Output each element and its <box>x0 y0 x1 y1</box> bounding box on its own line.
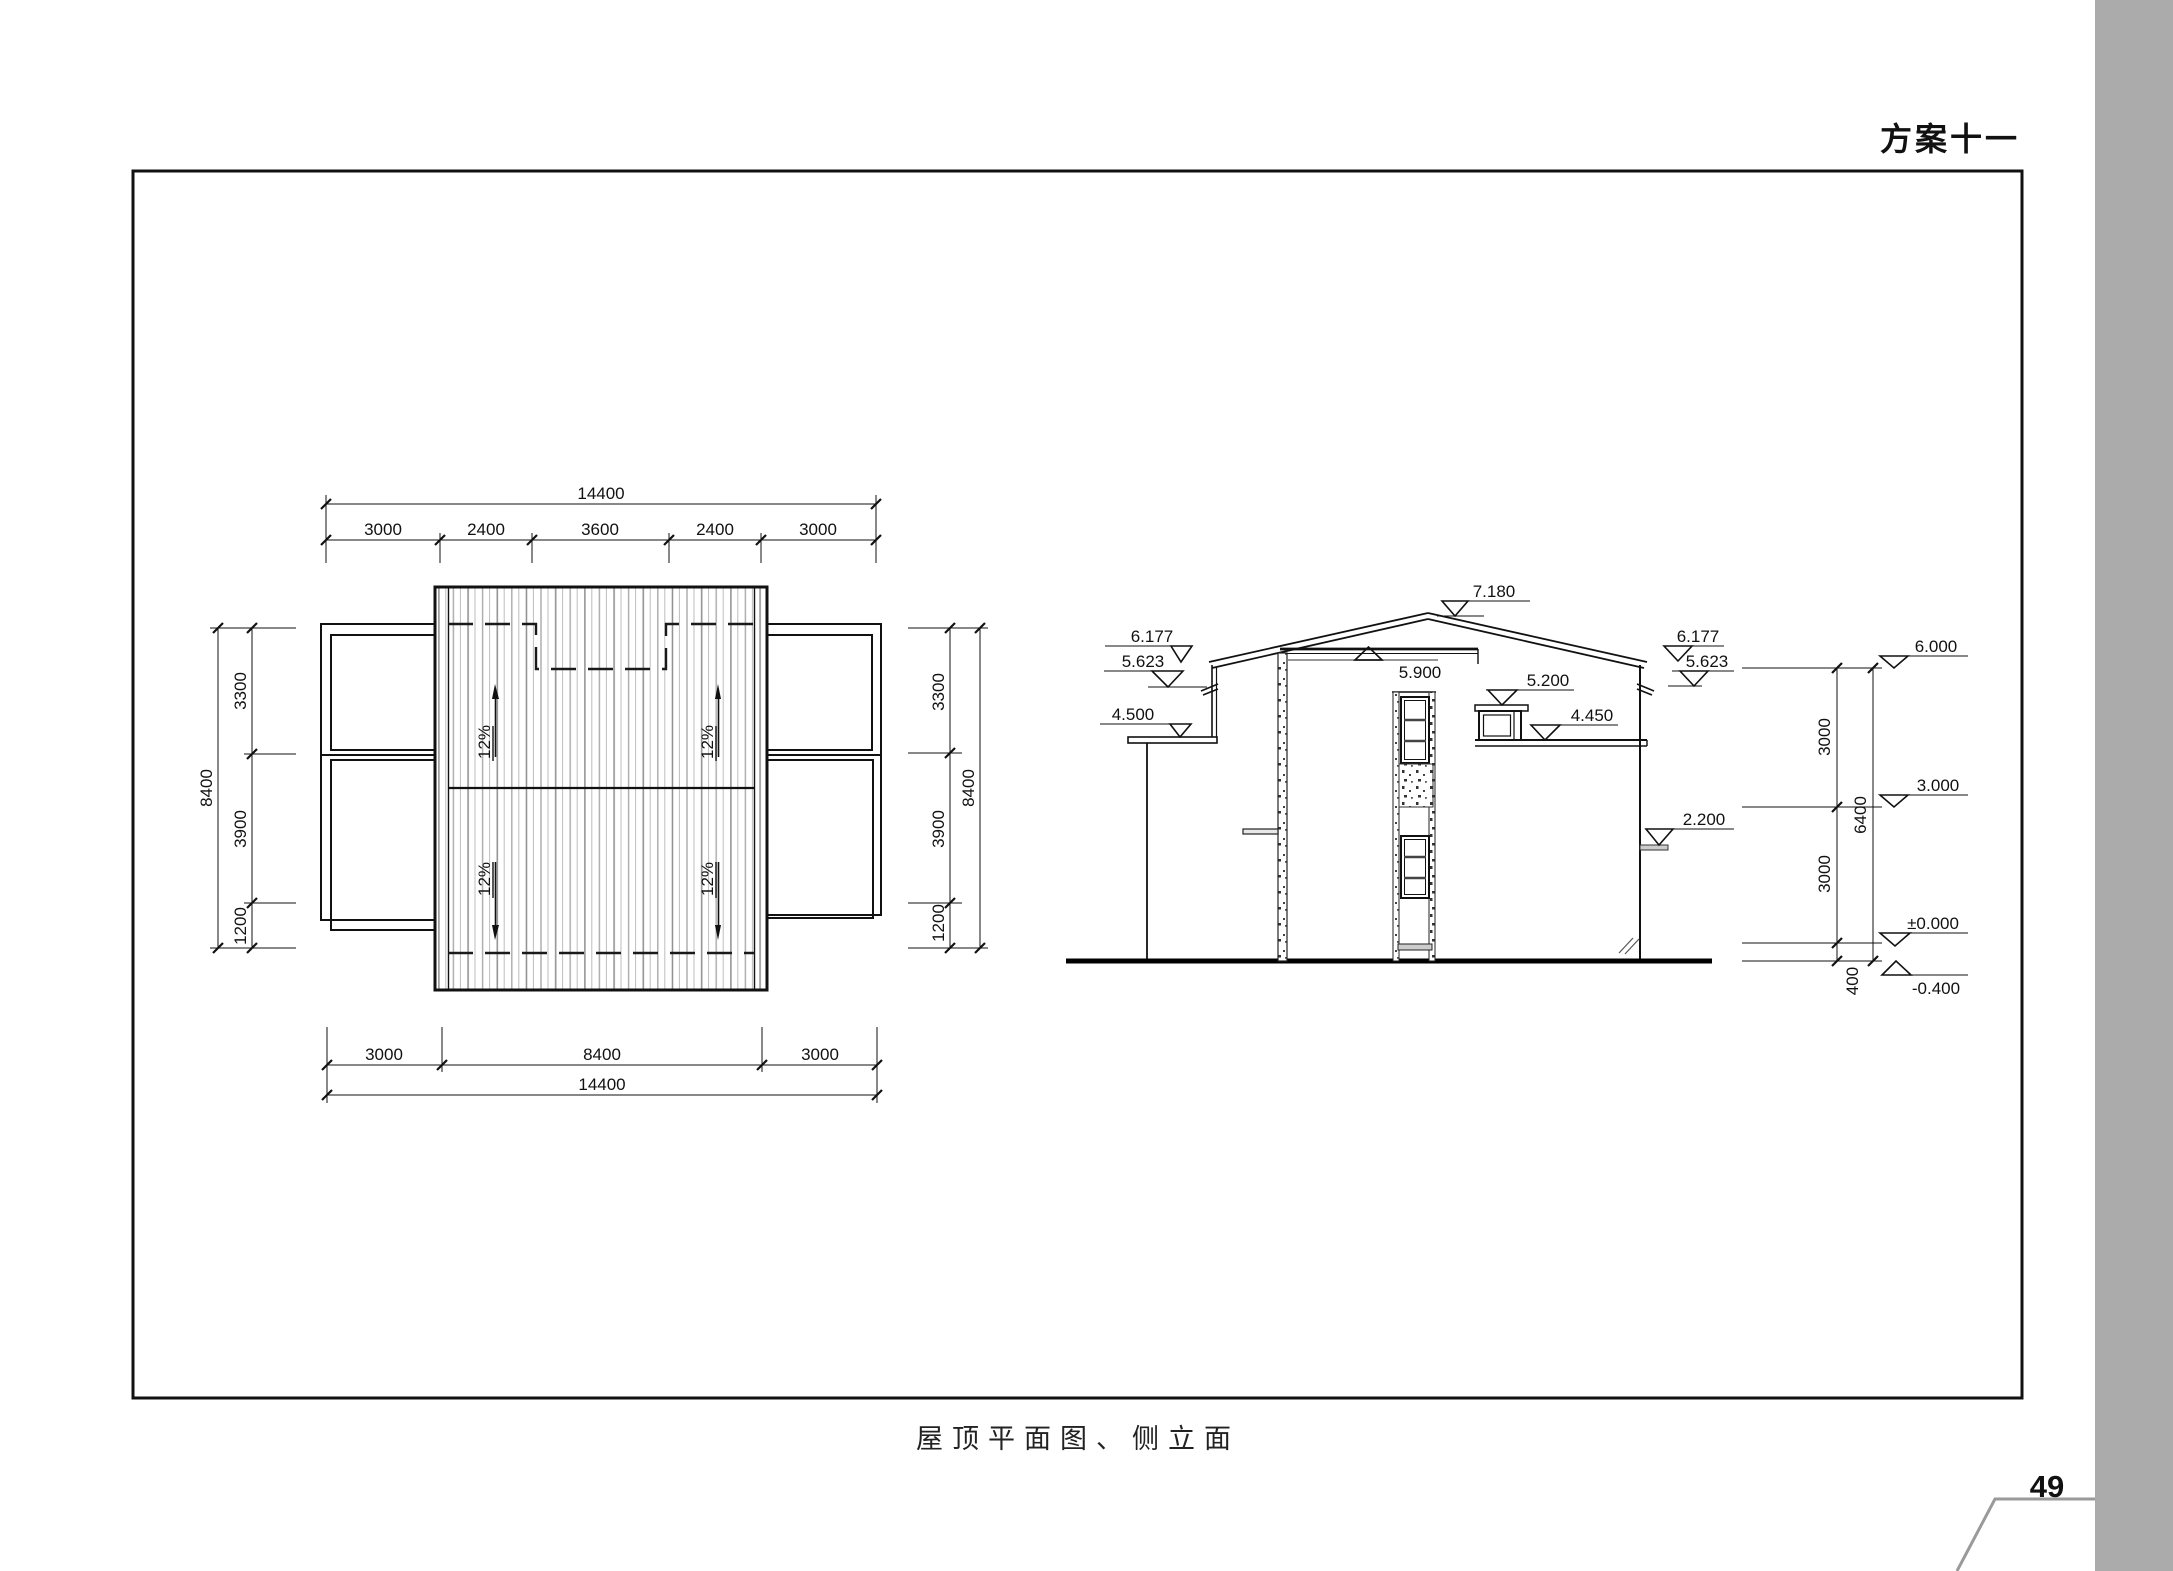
dim-label: 2400 <box>696 520 734 539</box>
dim-label: 8400 <box>197 769 216 807</box>
level-label: 5.623 <box>1122 652 1165 671</box>
stair-wall-panel <box>1399 764 1433 807</box>
dim-label: 3000 <box>1815 855 1834 893</box>
wall-section-strip <box>1278 653 1287 961</box>
dim-label: 3300 <box>231 672 250 710</box>
level-label: 6.177 <box>1131 627 1174 646</box>
dim-label: 3000 <box>799 520 837 539</box>
canopy-ledge <box>1243 829 1278 834</box>
dim-label: 1200 <box>929 904 948 942</box>
level-label: 2.200 <box>1683 810 1726 829</box>
level-label: 4.450 <box>1571 706 1614 725</box>
level-label: 5.200 <box>1527 671 1570 690</box>
dim-label: 400 <box>1843 967 1862 995</box>
level-label: 7.180 <box>1473 582 1516 601</box>
dim-label: 2400 <box>467 520 505 539</box>
level-label: 5.900 <box>1399 663 1442 682</box>
page-title: 方案十一 <box>1880 121 2020 157</box>
level-label: 3.000 <box>1917 776 1960 795</box>
dim-label: 3000 <box>1815 718 1834 756</box>
page-background <box>0 0 2173 1571</box>
dim-label: 3000 <box>365 1045 403 1064</box>
dim-label: 3300 <box>929 673 948 711</box>
architectural-drawing: 方案十一 屋顶平面图、侧立面 49 <box>0 0 2173 1571</box>
level-label: 4.500 <box>1112 705 1155 724</box>
stair-window-upper <box>1401 697 1429 763</box>
stair-window-sill <box>1398 944 1432 950</box>
slope-label-lower-right: 12% <box>698 862 717 896</box>
drawing-caption: 屋顶平面图、侧立面 <box>916 1424 1240 1454</box>
dim-label: 3000 <box>801 1045 839 1064</box>
slope-label-upper-right: 12% <box>698 725 717 759</box>
slope-label-lower-left: 12% <box>475 862 494 896</box>
dim-label: 6400 <box>1851 796 1870 834</box>
page-number: 49 <box>2030 1469 2064 1504</box>
dim-label: 3000 <box>364 520 402 539</box>
gray-side-band <box>2095 0 2173 1571</box>
book-page: 方案十一 屋顶平面图、侧立面 49 <box>0 0 2173 1571</box>
dim-label: 1200 <box>231 907 250 945</box>
dim-label: 3600 <box>581 520 619 539</box>
dim-label: 3900 <box>231 810 250 848</box>
level-ledge-2200 <box>1640 845 1668 850</box>
dim-label: 8400 <box>959 769 978 807</box>
level-label: -0.400 <box>1912 979 1960 998</box>
level-label: 6.000 <box>1915 637 1958 656</box>
slope-label-upper-left: 12% <box>475 725 494 759</box>
dim-label: 14400 <box>578 1075 625 1094</box>
left-wing-parapet <box>1128 737 1217 743</box>
dim-label: 3900 <box>929 810 948 848</box>
dim-label: 14400 <box>577 484 624 503</box>
stair-window-lower <box>1401 836 1429 898</box>
level-label: ±0.000 <box>1907 914 1959 933</box>
dim-label: 8400 <box>583 1045 621 1064</box>
level-label: 6.177 <box>1677 627 1720 646</box>
level-label: 5.623 <box>1686 652 1729 671</box>
